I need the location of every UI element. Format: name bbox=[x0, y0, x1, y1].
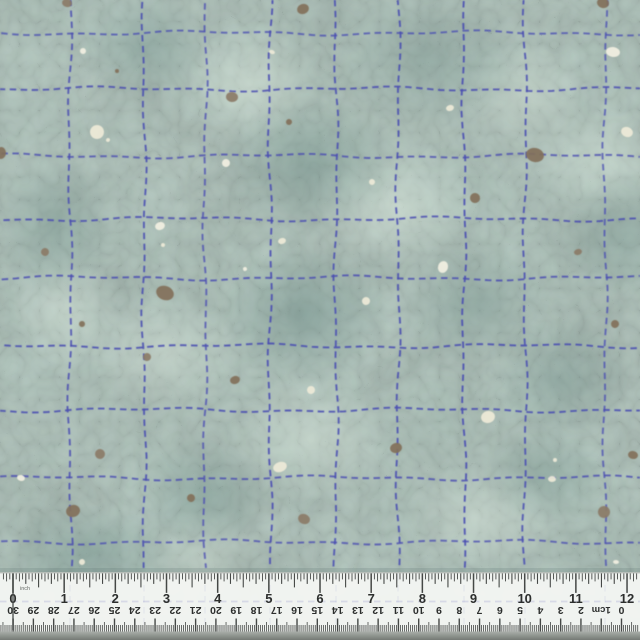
inch-unit-label: inch bbox=[20, 586, 30, 592]
cm-label-8: 8 bbox=[456, 604, 462, 616]
inch-label-3: 3 bbox=[163, 591, 170, 606]
cm-label-18: 18 bbox=[251, 604, 263, 616]
cm-label-29: 29 bbox=[27, 604, 39, 616]
cm-label-6: 6 bbox=[497, 604, 503, 616]
cm-label-20: 20 bbox=[210, 604, 222, 616]
cm-label-19: 19 bbox=[230, 604, 242, 616]
cm-label-7: 7 bbox=[476, 604, 482, 616]
cm-label-9: 9 bbox=[436, 604, 442, 616]
ruler-top-edge bbox=[0, 572, 640, 573]
inch-label-1: 1 bbox=[61, 591, 68, 606]
cm-label-16: 16 bbox=[291, 604, 303, 616]
cm-label-13: 13 bbox=[352, 604, 364, 616]
cm-label-28: 28 bbox=[48, 604, 60, 616]
cm-label-27: 27 bbox=[68, 604, 80, 616]
cm-label-22: 22 bbox=[169, 604, 181, 616]
cm-label-26: 26 bbox=[88, 604, 100, 616]
ruler-bottom-strip bbox=[0, 632, 640, 640]
cm-label-24: 24 bbox=[129, 604, 141, 616]
cm-label-10: 10 bbox=[413, 604, 425, 616]
cm-label-12: 12 bbox=[372, 604, 384, 616]
cm-label-25: 25 bbox=[109, 604, 121, 616]
cm-label-4: 4 bbox=[537, 604, 543, 616]
cm-label-2: 2 bbox=[578, 604, 584, 616]
inch-label-9: 9 bbox=[470, 591, 477, 606]
cm-label-5: 5 bbox=[517, 604, 523, 616]
cm-label-21: 21 bbox=[190, 604, 202, 616]
cm-label-11: 11 bbox=[393, 604, 404, 616]
cm-label-0: 0 bbox=[618, 604, 624, 616]
cm-label-3: 3 bbox=[558, 604, 564, 616]
inch-label-7: 7 bbox=[368, 591, 375, 606]
cm-label-17: 17 bbox=[271, 604, 283, 616]
cm-label-15: 15 bbox=[311, 604, 323, 616]
inch-label-2: 2 bbox=[112, 591, 119, 606]
ruler: 0123456789101112inch30292827262524232221… bbox=[0, 0, 640, 640]
inch-label-8: 8 bbox=[419, 591, 426, 606]
cm-label-14: 14 bbox=[332, 604, 344, 616]
fabric-product-photo: 0123456789101112inch30292827262524232221… bbox=[0, 0, 640, 640]
inch-label-5: 5 bbox=[265, 591, 272, 606]
inch-label-4: 4 bbox=[214, 591, 222, 606]
cm-label-23: 23 bbox=[149, 604, 161, 616]
inch-label-12: 12 bbox=[620, 591, 634, 606]
inch-label-6: 6 bbox=[316, 591, 323, 606]
inch-label-10: 10 bbox=[517, 591, 531, 606]
cm-label-1cm: 1cm bbox=[592, 604, 611, 615]
inch-label-11: 11 bbox=[569, 591, 583, 606]
